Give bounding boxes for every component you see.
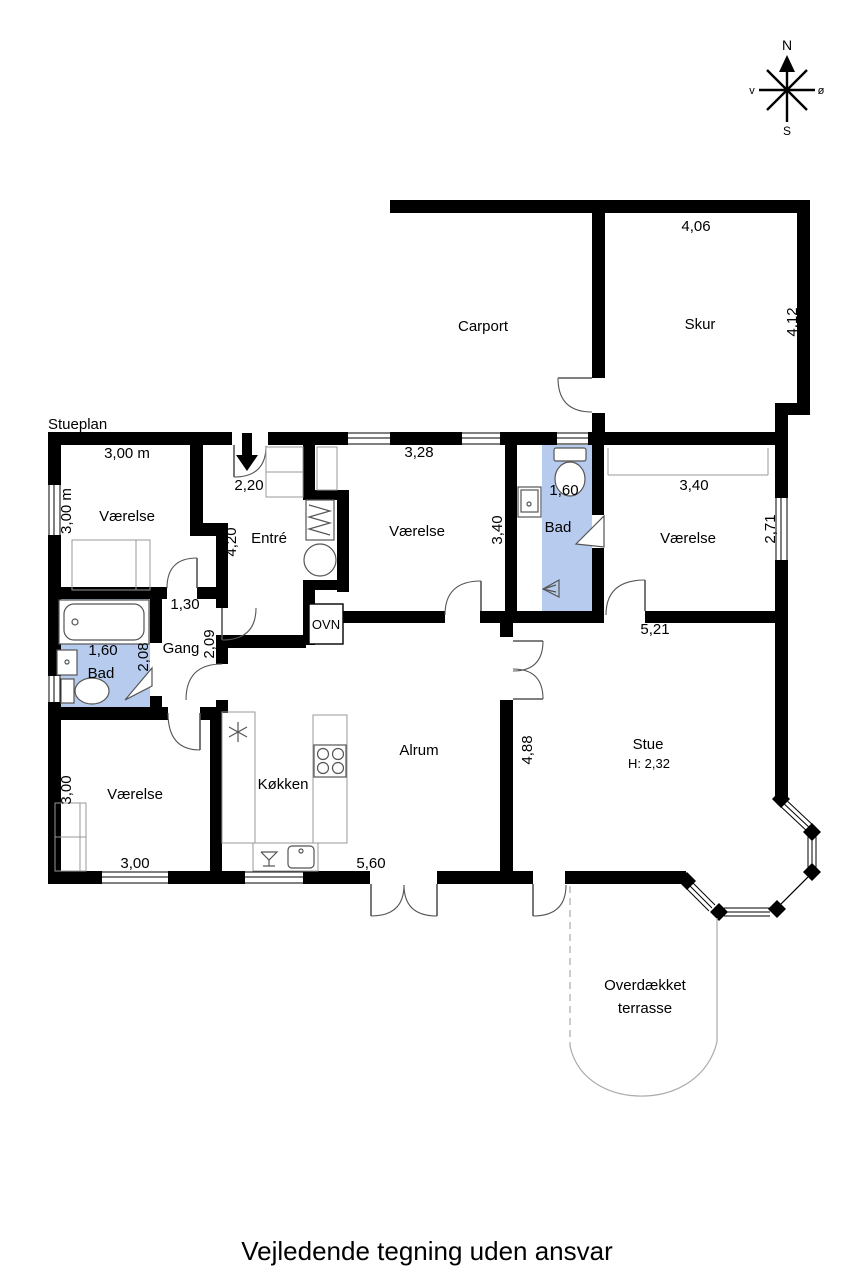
skur-label: Skur [685, 316, 716, 333]
terrasse-label-line2: terrasse [618, 1000, 672, 1017]
compass-west-label: v [749, 85, 755, 97]
ovn-label: OVN [312, 617, 340, 632]
skur-width-dim: 4,06 [681, 218, 710, 235]
terrace-door [533, 884, 566, 916]
window [462, 432, 500, 445]
bay-window [678, 790, 821, 921]
door-vaerelse-ne [606, 580, 645, 615]
vaerelse-ne-width-dim: 3,40 [679, 477, 708, 494]
vaerelse-sw-depth-dim: 3,00 [58, 775, 75, 804]
vaerelse-ne-depth-dim: 2,71 [762, 514, 779, 543]
bad-w-label: Bad [88, 665, 115, 682]
stue-label: Stue [633, 736, 664, 753]
washing-machine [304, 544, 336, 576]
bad-w-depth-dim: 2,08 [135, 642, 152, 671]
gang-width-dim: 1,30 [170, 596, 199, 613]
vaerelse-sw-width-dim: 3,00 [120, 855, 149, 872]
stove [314, 745, 346, 777]
entre-entry-width-dim: 2,20 [234, 477, 263, 494]
bad-n-width-dim: 1,60 [549, 482, 578, 499]
fixtures: OVN [55, 447, 768, 871]
labels: Stueplan Carport Skur 4,06 4,12 3,00 m V… [48, 218, 801, 1266]
skur-depth-dim: 4,12 [784, 307, 801, 336]
entre-label: Entré [251, 530, 287, 547]
fridge-snowflake-icon [229, 722, 247, 742]
gang-label: Gang [163, 640, 200, 657]
vaerelse-n-label: Værelse [389, 523, 445, 540]
vaerelse-n-depth-dim: 3,40 [489, 515, 506, 544]
entre-depth-dim: 4,20 [223, 527, 240, 556]
entrance-arrow-icon [236, 433, 258, 471]
compass-east-label: ø [818, 85, 825, 97]
floor-plan-page: N S v ø [0, 0, 853, 1280]
vaerelse-nw-label: Værelse [99, 508, 155, 525]
windows [48, 432, 788, 884]
window [348, 432, 390, 445]
sink-niche [518, 487, 541, 517]
koekken-label: Køkken [258, 776, 309, 793]
sink-bad-w [57, 650, 77, 675]
kitchen-counter-bottom [253, 843, 318, 871]
door-gang-passage [186, 664, 222, 700]
door-vaerelse-n [445, 581, 481, 615]
plan-title: Stueplan [48, 416, 107, 433]
vaerelse-ne-label: Værelse [660, 530, 716, 547]
window [102, 871, 168, 884]
carport-label: Carport [458, 318, 509, 335]
closet-entre [266, 447, 337, 497]
gang-depth-dim: 2,09 [201, 629, 218, 658]
alrum-depth-dim: 4,88 [519, 735, 536, 764]
terrasse-label-line1: Overdækket [604, 977, 687, 994]
compass-rose-icon: N S v ø [749, 37, 824, 138]
alrum-label: Alrum [399, 742, 438, 759]
kitchen-sink [288, 846, 314, 868]
vaerelse-n-width-dim: 3,28 [404, 444, 433, 461]
floor-plan-svg: N S v ø [0, 0, 853, 1280]
ovn-box: OVN [309, 604, 343, 644]
vaerelse-nw-depth-dim: 3,00 m [58, 488, 75, 534]
compass-south-label: S [783, 124, 791, 138]
door-vaerelse-sw [168, 713, 200, 750]
kitchen-island [313, 715, 347, 843]
water-heater [306, 500, 334, 540]
bad-n-label: Bad [545, 519, 572, 536]
bathtub [59, 600, 149, 644]
vaerelse-sw-label: Værelse [107, 786, 163, 803]
french-doors [371, 884, 437, 916]
window [557, 432, 588, 445]
closet-vaerelse-nw [72, 540, 150, 590]
stue-ceiling-height: H: 2,32 [628, 756, 670, 771]
closet-vaerelse-ne [608, 448, 768, 475]
window [245, 871, 303, 884]
compass-north-label: N [782, 37, 792, 53]
door-vaerelse-nw [167, 558, 197, 588]
vaerelse-nw-width-dim: 3,00 m [104, 445, 150, 462]
alrum-width-dim: 5,60 [356, 855, 385, 872]
double-door-stue [513, 641, 543, 699]
door-skur [558, 378, 592, 412]
dishwasher-icon [261, 852, 277, 866]
bad-w-width-dim: 1,60 [88, 642, 117, 659]
footer-disclaimer: Vejledende tegning uden ansvar [241, 1236, 613, 1266]
stue-width-dim: 5,21 [640, 621, 669, 638]
window [48, 676, 61, 702]
